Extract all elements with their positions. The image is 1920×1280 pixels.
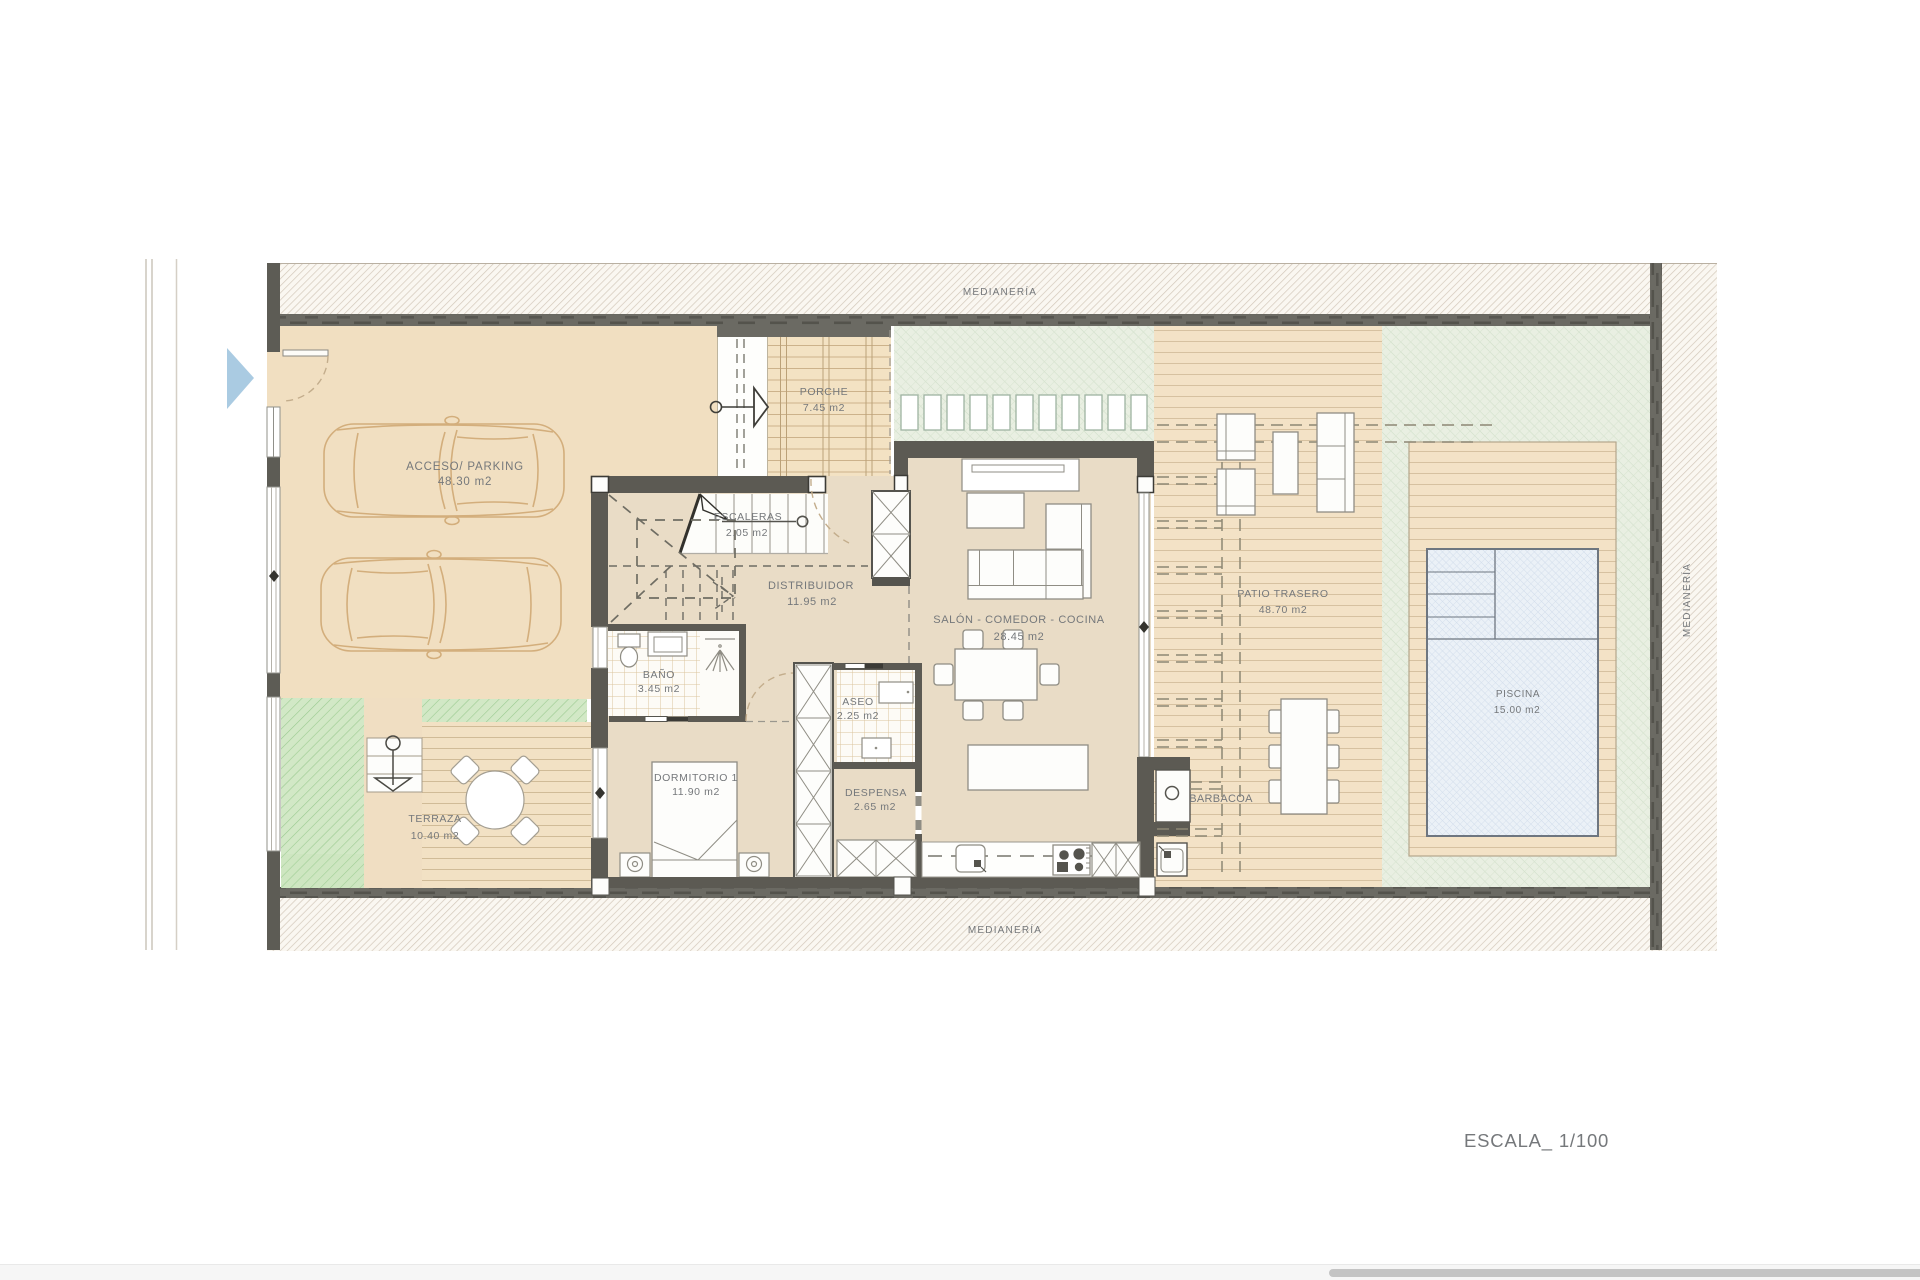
svg-text:11.95 m2: 11.95 m2 <box>787 596 837 608</box>
svg-text:3.45 m2: 3.45 m2 <box>638 683 680 695</box>
svg-text:PISCINA: PISCINA <box>1496 689 1540 700</box>
svg-text:11.90 m2: 11.90 m2 <box>672 786 720 798</box>
svg-text:7.45 m2: 7.45 m2 <box>803 402 845 414</box>
svg-text:BAÑO: BAÑO <box>643 668 675 681</box>
svg-text:15.00 m2: 15.00 m2 <box>1494 705 1541 716</box>
svg-text:MEDIANERÍA: MEDIANERÍA <box>968 923 1042 936</box>
svg-text:BARBACOA: BARBACOA <box>1189 793 1253 805</box>
svg-text:ESCALERAS: ESCALERAS <box>714 511 782 523</box>
svg-text:10.40 m2: 10.40 m2 <box>411 830 460 842</box>
svg-text:2.65 m2: 2.65 m2 <box>854 801 896 813</box>
svg-text:MEDIANERÍA: MEDIANERÍA <box>963 285 1037 298</box>
svg-text:PORCHE: PORCHE <box>800 386 849 398</box>
svg-text:ESCALA_ 1/100: ESCALA_ 1/100 <box>1464 1130 1609 1152</box>
svg-text:2.25 m2: 2.25 m2 <box>837 710 879 722</box>
svg-text:DESPENSA: DESPENSA <box>845 787 907 799</box>
svg-text:ACCESO/ PARKING: ACCESO/ PARKING <box>406 461 524 473</box>
svg-text:TERRAZA: TERRAZA <box>408 813 461 825</box>
svg-text:28.45 m2: 28.45 m2 <box>994 631 1045 643</box>
svg-text:DISTRIBUIDOR: DISTRIBUIDOR <box>768 580 854 592</box>
svg-text:SALÓN - COMEDOR - COCINA: SALÓN - COMEDOR - COCINA <box>933 613 1105 626</box>
svg-text:DORMITORIO 1: DORMITORIO 1 <box>654 772 738 784</box>
svg-text:MEDIANERÍA: MEDIANERÍA <box>1680 563 1693 637</box>
svg-text:PATIO TRASERO: PATIO TRASERO <box>1237 588 1328 600</box>
svg-text:48.70 m2: 48.70 m2 <box>1259 604 1308 616</box>
svg-text:2.05 m2: 2.05 m2 <box>726 527 768 539</box>
svg-text:ASEO: ASEO <box>842 696 874 708</box>
svg-text:48.30 m2: 48.30 m2 <box>438 476 492 488</box>
